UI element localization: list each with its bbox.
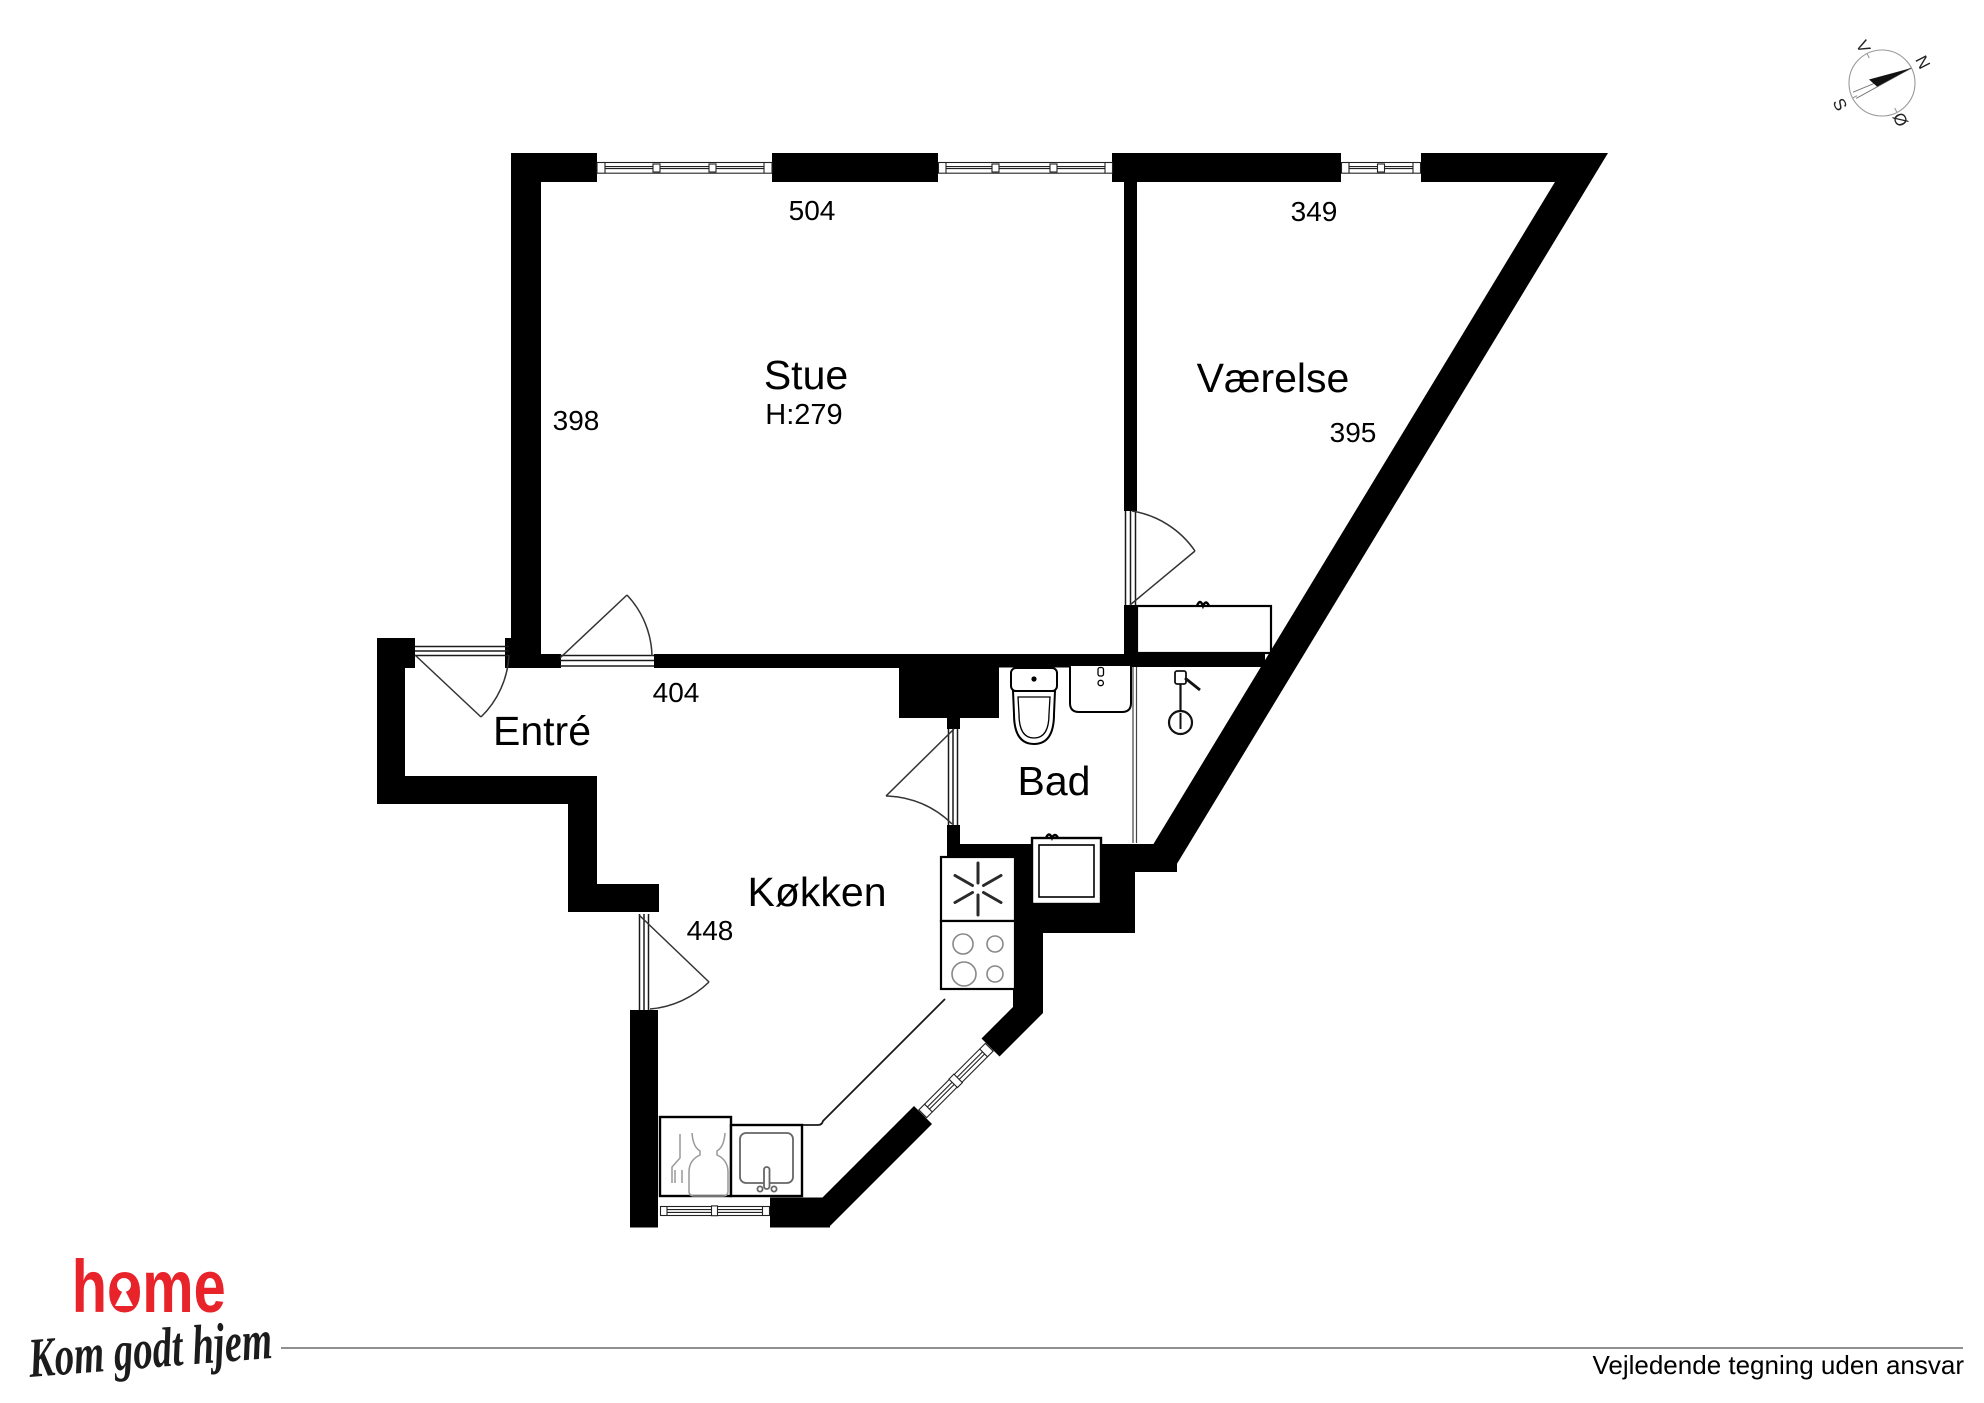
svg-text:H:279: H:279	[765, 399, 842, 431]
svg-text:Vejledende tegning uden ansvar: Vejledende tegning uden ansvar	[1592, 1350, 1964, 1380]
svg-text:Værelse: Værelse	[1197, 355, 1350, 401]
svg-text:398: 398	[553, 405, 600, 436]
svg-text:Entré: Entré	[493, 708, 591, 754]
svg-text:Køkken: Køkken	[748, 869, 887, 915]
svg-text:448: 448	[687, 915, 734, 946]
svg-text:504: 504	[789, 195, 836, 226]
svg-text:Stue: Stue	[764, 352, 848, 398]
svg-text:349: 349	[1291, 196, 1338, 227]
svg-text:395: 395	[1330, 417, 1377, 448]
svg-text:404: 404	[653, 677, 700, 708]
svg-text:Bad: Bad	[1018, 758, 1091, 804]
